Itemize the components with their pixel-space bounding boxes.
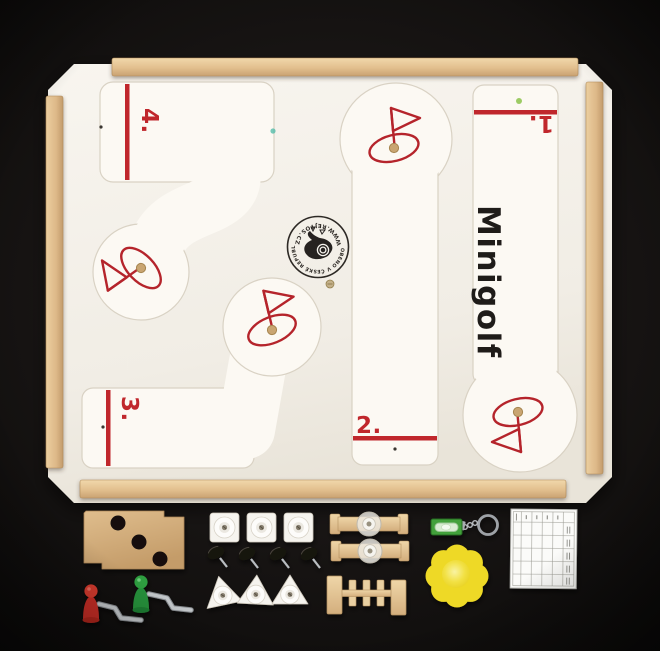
photo-vignette	[0, 0, 660, 651]
product-photo-stage: 4. 3. 2. 1.	[0, 0, 660, 651]
minigolf-photo: 4. 3. 2. 1.	[0, 0, 660, 651]
